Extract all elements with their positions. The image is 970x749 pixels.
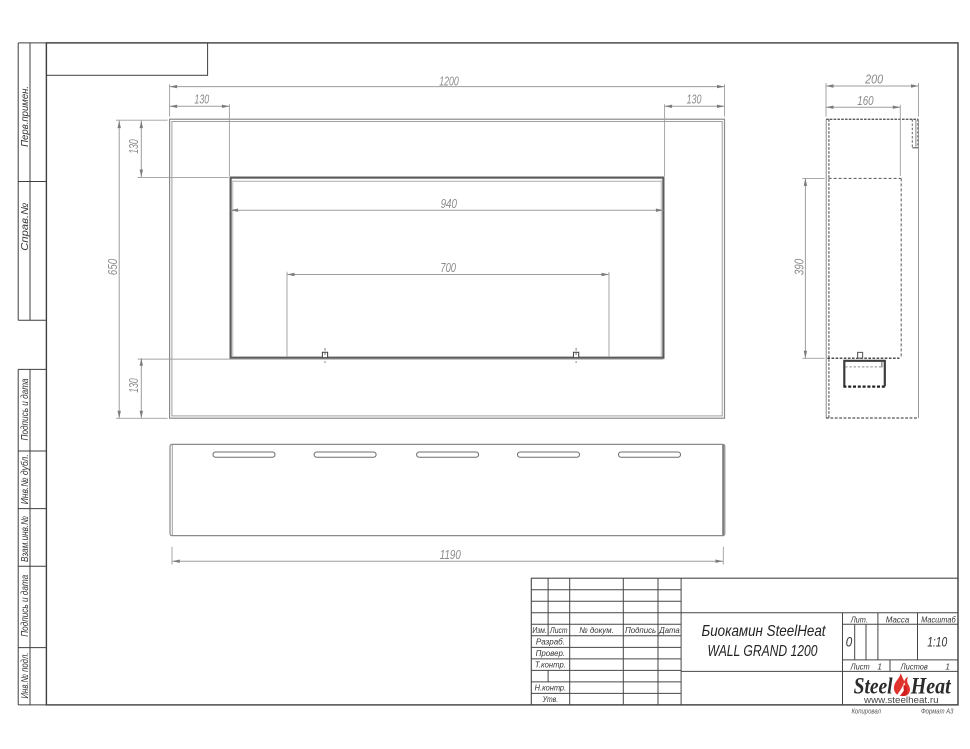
svg-text:Подпись и дата: Подпись и дата	[20, 574, 31, 636]
svg-text:Листов: Листов	[900, 662, 929, 672]
svg-text:130: 130	[194, 92, 209, 106]
svg-text:Дата: Дата	[658, 625, 680, 635]
svg-text:Лист: Лист	[850, 662, 870, 672]
svg-text:390: 390	[792, 259, 806, 275]
svg-text:Инв.№ подл.: Инв.№ подл.	[20, 653, 31, 699]
svg-text:Справ.№: Справ.№	[20, 203, 31, 251]
svg-text:1: 1	[945, 662, 950, 672]
svg-text:130: 130	[127, 139, 141, 153]
svg-text:0: 0	[846, 634, 853, 649]
svg-text:1200: 1200	[439, 74, 459, 88]
svg-text:130: 130	[127, 378, 141, 392]
svg-text:Копировал: Копировал	[851, 707, 881, 716]
svg-text:130: 130	[687, 92, 702, 106]
svg-text:Утв.: Утв.	[542, 694, 558, 704]
svg-text:www.steelheat.ru: www.steelheat.ru	[863, 695, 939, 705]
svg-text:1: 1	[877, 662, 882, 672]
svg-text:650: 650	[106, 259, 120, 276]
svg-text:Масштаб: Масштаб	[921, 614, 957, 624]
svg-text:Биокамин SteelHeat: Биокамин SteelHeat	[702, 623, 826, 640]
svg-text:Масса: Масса	[886, 614, 910, 624]
svg-text:940: 940	[441, 197, 457, 211]
svg-text:Т.контр.: Т.контр.	[535, 660, 566, 670]
svg-text:700: 700	[440, 261, 456, 275]
svg-text:Н.контр.: Н.контр.	[535, 683, 567, 693]
svg-text:Лит.: Лит.	[850, 614, 868, 624]
svg-text:Инв.№ дубл.: Инв.№ дубл.	[19, 454, 31, 504]
svg-text:Перв.примен.: Перв.примен.	[20, 86, 31, 147]
svg-text:Формат А3: Формат А3	[921, 707, 954, 716]
svg-text:Изм.: Изм.	[532, 625, 547, 635]
svg-text:Взам.инв.№: Взам.инв.№	[20, 516, 31, 562]
svg-text:Лист: Лист	[549, 625, 567, 635]
svg-text:160: 160	[857, 94, 873, 108]
svg-text:№ докум.: № докум.	[579, 625, 614, 635]
svg-text:Подпись: Подпись	[625, 625, 656, 635]
svg-text:1:10: 1:10	[927, 634, 947, 649]
svg-text:Провер.: Провер.	[536, 648, 566, 658]
svg-text:200: 200	[864, 72, 883, 86]
svg-text:WALL GRAND 1200: WALL GRAND 1200	[708, 643, 818, 660]
svg-text:Разраб.: Разраб.	[536, 637, 565, 647]
svg-text:Подпись и дата: Подпись и дата	[20, 378, 31, 440]
svg-text:1190: 1190	[440, 548, 461, 562]
